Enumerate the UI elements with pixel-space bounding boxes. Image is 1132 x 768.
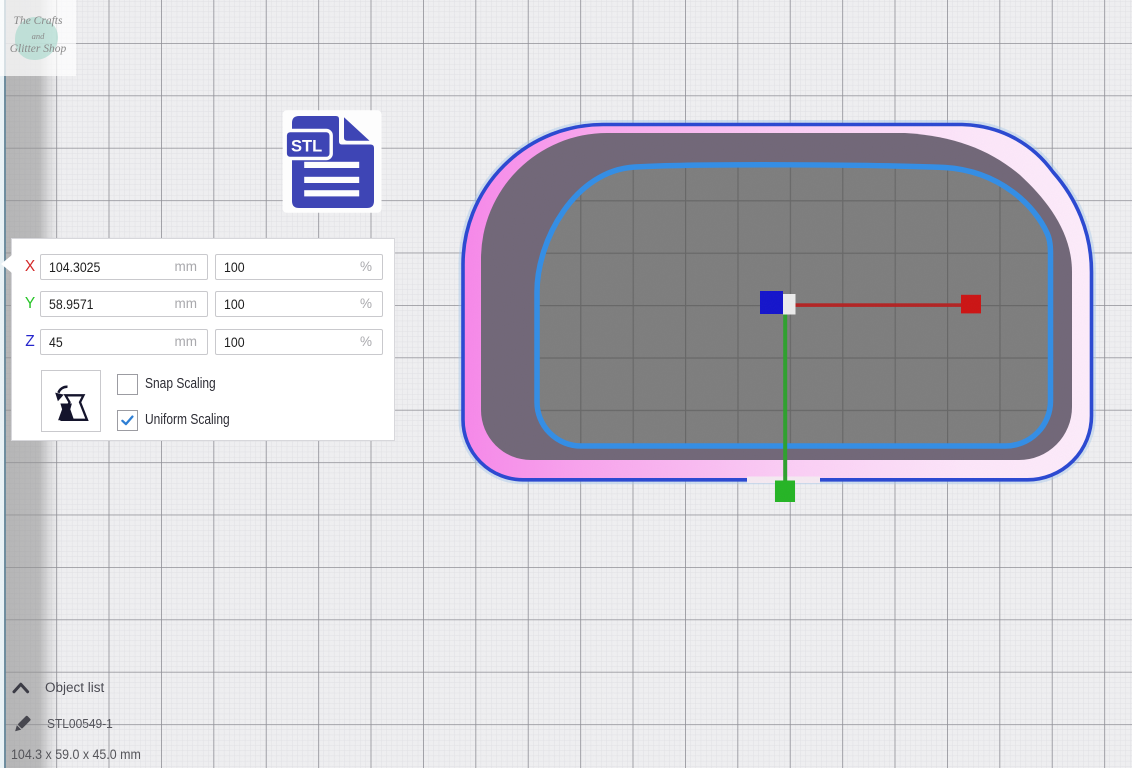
svg-text:STL: STL [291, 138, 322, 156]
